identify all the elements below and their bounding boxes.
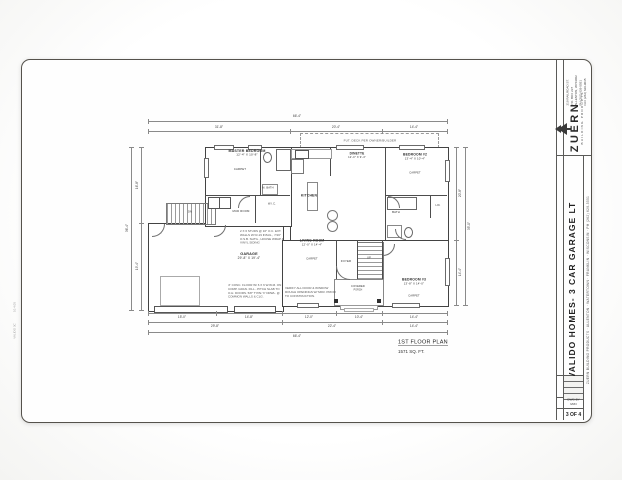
dimension-line (290, 131, 382, 132)
dimension-tick (454, 305, 459, 306)
dimension-label: 14'-4" (458, 268, 462, 276)
porch-post (334, 299, 338, 303)
dimension-tick (447, 330, 448, 335)
dimension-line (131, 147, 132, 310)
dimension-line (282, 322, 382, 323)
fixture (160, 276, 200, 306)
dimension-line (148, 121, 447, 122)
interior-wall (357, 240, 358, 280)
dimension-tick (139, 310, 144, 311)
plan-caption-area: 1571 SQ. FT. (398, 349, 425, 354)
dimension-line (382, 131, 447, 132)
room-label-line: 12'-4" X 10'-8" (228, 153, 265, 157)
room-label: DN (188, 210, 192, 213)
dimension-tick (129, 147, 134, 148)
dimension-line (148, 313, 216, 314)
room-label-line: UP (367, 256, 371, 259)
interior-wall (386, 195, 447, 196)
window (445, 258, 450, 286)
room-label-line: 12'-0" X 14'-4" (300, 243, 325, 247)
dimension-line (382, 322, 447, 323)
room-label-line: MUD ROOM (232, 210, 249, 214)
dimension-tick (290, 129, 291, 134)
plan-note: 4" CONC. FLOOR W/ 6 X 6 W.W.M. ON COMP. … (228, 284, 282, 300)
room-label-line: CARPET (409, 171, 420, 174)
fixture (344, 308, 374, 312)
future-deck-label: FUT. DECK PER OWNER/BUILDER (343, 139, 396, 142)
window (399, 145, 425, 150)
fixture (327, 221, 338, 232)
window (392, 303, 420, 308)
window (445, 160, 450, 182)
dimension-tick (454, 240, 459, 241)
room-label: LIN. (436, 204, 441, 207)
plan-note: VERIFY ALL DOOR & WINDOW ROUGH OPENINGS … (285, 287, 337, 299)
dimension-label: 19'-4" (135, 262, 139, 270)
dimension-tick (454, 147, 459, 148)
dimension-label: 14'-4" (410, 125, 418, 129)
dimension-line (148, 322, 282, 323)
room-label-line: LIN. (436, 204, 441, 207)
room-label: UP (367, 256, 371, 259)
dimension-line (336, 313, 382, 314)
floor-plan: FUT. DECK PER OWNER/BUILDER 1ST FLOOR PL… (0, 0, 622, 480)
porch-post (377, 299, 381, 303)
dimension-tick (282, 311, 283, 316)
room-label: BEDROOM #213'-4" X 10'-4" (403, 153, 427, 161)
room-label: COVEREDPORCH (351, 285, 365, 291)
dimension-label: 31'-8" (215, 125, 223, 129)
dimension-line (148, 131, 290, 132)
dimension-tick (139, 223, 144, 224)
fixture (295, 150, 309, 159)
interior-wall (336, 240, 337, 280)
dimension-label: 66'-4" (293, 334, 301, 338)
dimension-tick (148, 119, 149, 124)
fixture (234, 306, 276, 313)
dimension-tick (148, 311, 149, 316)
dimension-label: 36'-4" (125, 224, 129, 232)
room-label: W.I.C. (268, 202, 276, 205)
dimension-line (282, 313, 336, 314)
dimension-line (456, 240, 457, 305)
dimension-label: 20'-8" (458, 189, 462, 197)
dimension-tick (129, 310, 134, 311)
dimension-tick (463, 147, 468, 148)
room-label: MASTER BEDROOM12'-4" X 10'-8" (228, 149, 265, 158)
room-label: FOYER (341, 260, 351, 264)
dimension-line (141, 223, 142, 310)
dimension-line (382, 313, 447, 314)
dimension-tick (148, 320, 149, 325)
dimension-line (141, 147, 142, 223)
dimension-tick (148, 129, 149, 134)
room-label-line: 12'-0" X 9'-4" (348, 156, 366, 160)
plan-caption-title: 1ST FLOOR PLAN (398, 339, 448, 346)
dimension-tick (382, 129, 383, 134)
plan-note: 2 X 6 STUDS @ 16" O.C. EXT. WALLS W/ R-1… (240, 230, 284, 246)
interior-wall (430, 196, 431, 218)
room-label: M. BATH (262, 186, 273, 189)
room-label: LIVING ROOM12'-0" X 14'-4" (300, 239, 325, 247)
dimension-tick (447, 129, 448, 134)
dimension-label: 15'-0" (178, 315, 186, 319)
window (204, 158, 209, 178)
stairs (357, 242, 384, 280)
room-label-line: KITCHEN (301, 194, 317, 198)
dimension-tick (216, 311, 217, 316)
dimension-tick (382, 311, 383, 316)
dimension-label: 16'-8" (135, 181, 139, 189)
dimension-label: 22'-4" (328, 324, 336, 328)
dimension-tick (447, 119, 448, 124)
room-label-line: CARPET (234, 168, 246, 172)
dimension-label: 35'-0" (467, 222, 471, 230)
fixture (219, 197, 231, 209)
room-label: CARPET (306, 257, 317, 260)
room-label: BATH (392, 211, 400, 215)
room-label-line: BATH (392, 211, 400, 215)
dimension-tick (336, 311, 337, 316)
dimension-tick (139, 147, 144, 148)
room-label-line: CARPET (306, 257, 317, 260)
dimension-line (456, 147, 457, 240)
interior-wall (255, 196, 256, 223)
room-label: KITCHEN (301, 194, 317, 198)
room-label: CARPET (408, 294, 419, 297)
dimension-label: 66'-4" (293, 114, 301, 118)
room-label: CARPET (409, 171, 420, 174)
dimension-tick (382, 320, 383, 325)
room-label: GARAGE29'-8" X 19'-4" (238, 251, 261, 260)
room-label: CARPET (234, 168, 246, 172)
dimension-line (148, 332, 447, 333)
interior-wall (385, 148, 386, 240)
dimension-label: 29'-8" (211, 324, 219, 328)
room-label: DINETTE12'-0" X 9'-4" (348, 152, 366, 160)
room-label-line: M. BATH (262, 186, 273, 189)
room-label-line: CARPET (408, 294, 419, 297)
fixture (327, 210, 338, 221)
dimension-label: 10'-4" (355, 315, 363, 319)
dimension-label: 14'-4" (410, 324, 418, 328)
room-label-line: 29'-8" X 19'-4" (238, 256, 261, 260)
dimension-tick (282, 320, 283, 325)
dimension-tick (463, 305, 468, 306)
room-label-line: FOYER (341, 260, 351, 264)
room-label-line: W.I.C. (268, 202, 276, 205)
room-label-line: 13'-4" X 10'-4" (403, 157, 427, 161)
dimension-tick (447, 320, 448, 325)
room-label-line: PORCH (351, 288, 365, 291)
room-label: BEDROOM #313'-8" X 14'-0" (402, 278, 426, 286)
fixture (291, 159, 304, 174)
dimension-line (465, 147, 466, 305)
window (297, 303, 319, 308)
window (336, 145, 364, 150)
dimension-tick (447, 311, 448, 316)
room-label-line: 13'-8" X 14'-0" (402, 282, 426, 286)
blueprint-photo: 219 RAILROAD ST.P.O. BOX 237ALLENTON, WI… (0, 0, 622, 480)
dimension-line (216, 313, 282, 314)
room-label: MUD ROOM (232, 210, 249, 214)
dimension-label: 12'-0" (305, 315, 313, 319)
dimension-label: 14'-4" (410, 315, 418, 319)
fixture (276, 149, 291, 171)
dimension-label: 14'-8" (245, 315, 253, 319)
room-label-line: DN (188, 210, 192, 213)
dimension-label: 20'-4" (332, 125, 340, 129)
dimension-tick (148, 330, 149, 335)
